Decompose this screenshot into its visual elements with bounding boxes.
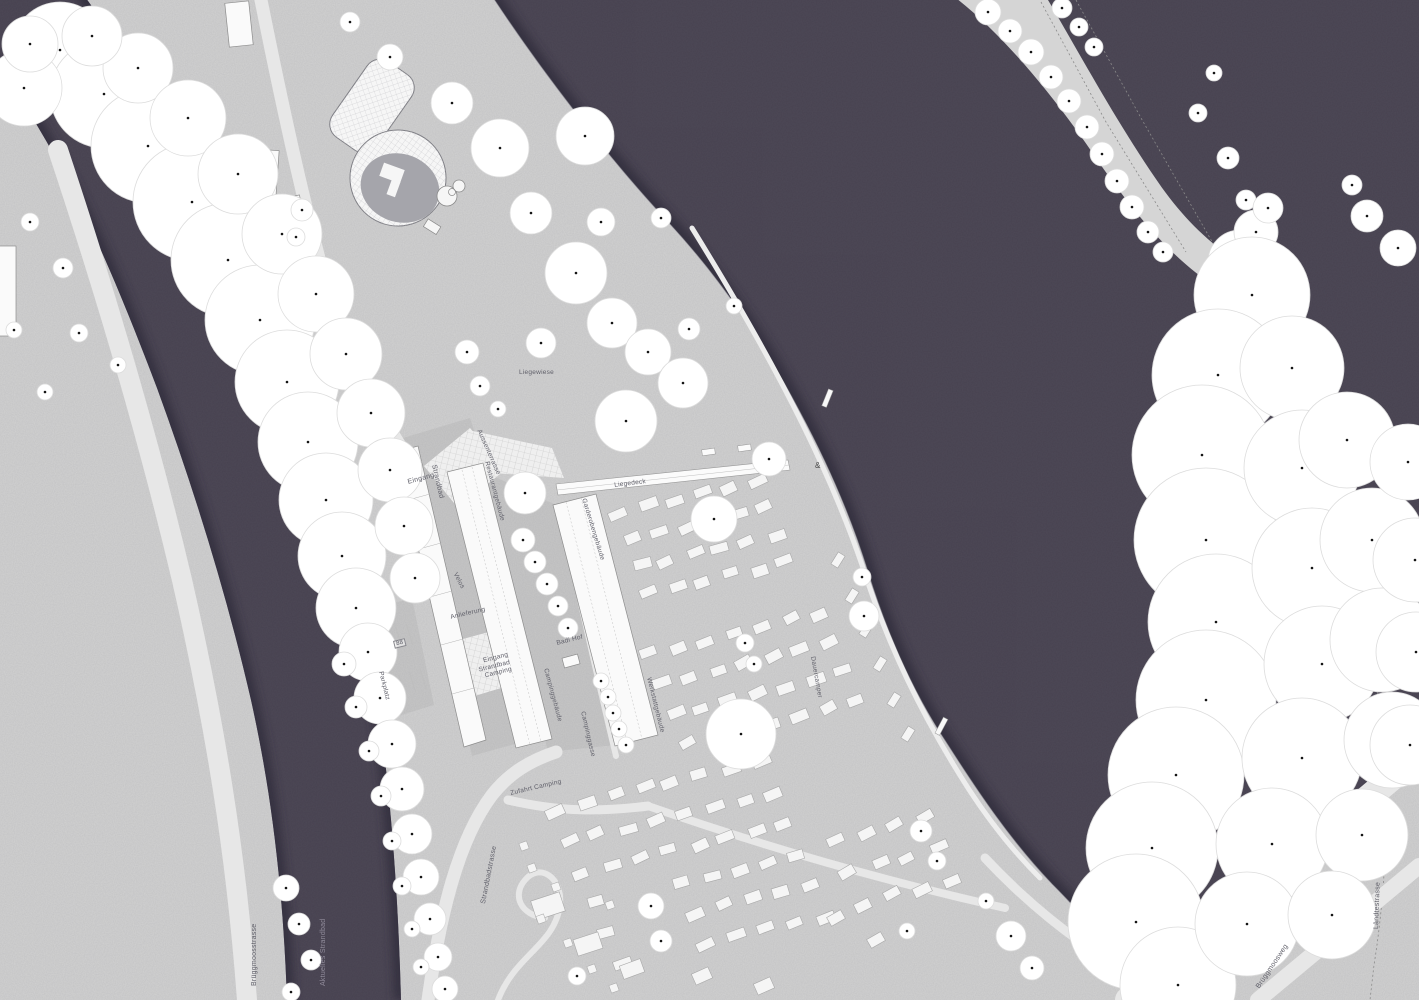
tree [1070, 18, 1088, 36]
tree [618, 737, 634, 753]
tree [605, 705, 621, 721]
tree [849, 601, 879, 631]
tree [975, 0, 1001, 25]
tree [558, 618, 578, 638]
tree [910, 820, 932, 842]
tree [1342, 175, 1362, 195]
tree [706, 699, 776, 769]
tree [432, 976, 458, 1000]
tree [536, 573, 558, 595]
tree [998, 19, 1022, 43]
tree [548, 596, 568, 616]
tree [928, 852, 946, 870]
tree [1351, 200, 1383, 232]
tree [746, 656, 762, 672]
tree [611, 721, 627, 737]
tree [1137, 221, 1159, 243]
tree [595, 390, 657, 452]
tree [1020, 956, 1044, 980]
tree [1018, 39, 1044, 65]
tree [650, 930, 672, 952]
tree [70, 324, 88, 342]
tree [587, 208, 615, 236]
tree [996, 921, 1026, 951]
tree [678, 318, 700, 340]
tree [1153, 242, 1173, 262]
tree [358, 438, 422, 502]
tree [377, 44, 403, 70]
tree [455, 340, 479, 364]
tree [726, 298, 742, 314]
tree [658, 358, 708, 408]
tree [600, 689, 616, 705]
site-plan: LiegewieseLiegedeckEingangStrandbadAusse… [0, 0, 1419, 1000]
tree [1206, 65, 1222, 81]
tree [899, 923, 915, 939]
tree [1039, 65, 1063, 89]
tree [556, 107, 614, 165]
tree [375, 497, 433, 555]
tree [390, 553, 440, 603]
tree [545, 242, 607, 304]
tree [371, 786, 391, 806]
tree [471, 119, 529, 177]
tree [568, 967, 586, 985]
tree [1120, 195, 1144, 219]
tree [21, 213, 39, 231]
tree [287, 228, 305, 246]
tree [651, 208, 671, 228]
tree [526, 328, 556, 358]
tree [345, 696, 367, 718]
tree [1052, 0, 1072, 18]
tree [853, 568, 871, 586]
tree [1075, 115, 1099, 139]
tree [1057, 89, 1081, 113]
tree [1195, 872, 1299, 976]
tree [470, 376, 490, 396]
tree [1380, 230, 1416, 266]
tree [37, 384, 53, 400]
tree [511, 528, 535, 552]
tree [504, 472, 546, 514]
tree [1217, 147, 1239, 169]
tree [340, 12, 360, 32]
tree [404, 921, 420, 937]
tree [1105, 169, 1129, 193]
tree [413, 959, 429, 975]
tree [337, 379, 405, 447]
tree [431, 82, 473, 124]
tree [6, 322, 22, 338]
tree [53, 258, 73, 278]
tree [638, 893, 664, 919]
tree [978, 893, 994, 909]
tree [301, 950, 321, 970]
site-plan-drawing [0, 0, 1419, 1000]
tree [291, 199, 313, 221]
tree [691, 496, 737, 542]
tree [282, 983, 300, 1000]
tree [1288, 871, 1376, 959]
tree [736, 634, 754, 652]
tree [273, 875, 299, 901]
tree [110, 357, 126, 373]
tree [1316, 789, 1408, 881]
tree [490, 401, 506, 417]
tree [593, 673, 609, 689]
tree [510, 192, 552, 234]
tree [752, 442, 786, 476]
tree [524, 551, 546, 573]
tree [2, 16, 58, 72]
tree [1253, 193, 1283, 223]
tree [1085, 38, 1103, 56]
tree [332, 652, 356, 676]
tree [1189, 104, 1207, 122]
tree [359, 741, 379, 761]
tree [383, 832, 401, 850]
tree [393, 877, 411, 895]
tree [62, 6, 122, 66]
tree [288, 913, 310, 935]
tree [1090, 142, 1114, 166]
